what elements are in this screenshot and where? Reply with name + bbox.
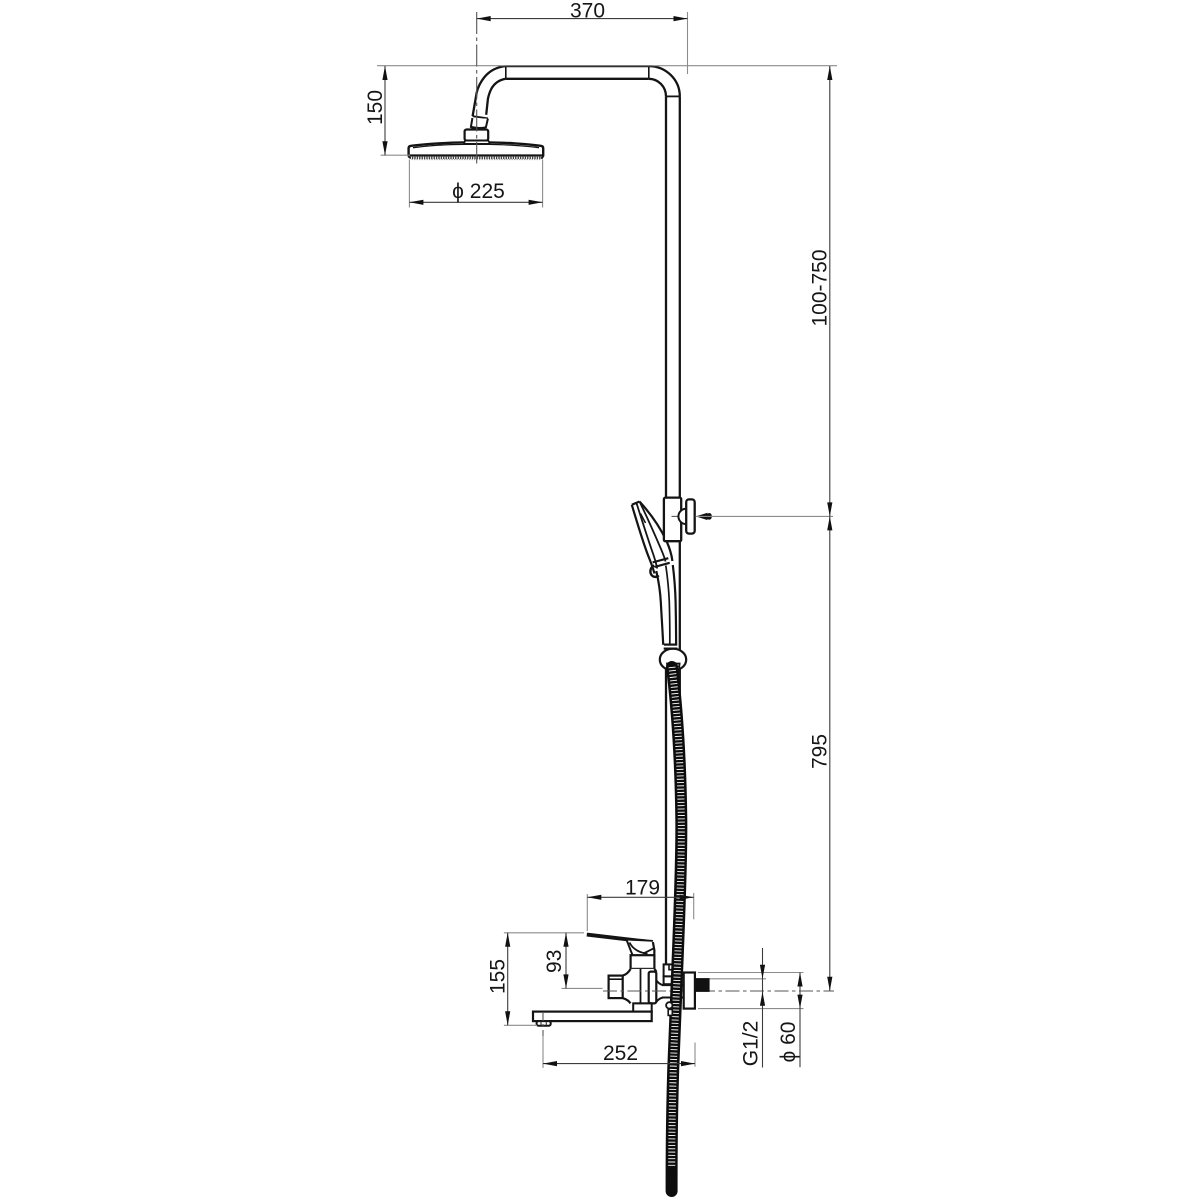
svg-text:150: 150: [364, 90, 387, 125]
svg-text:155: 155: [487, 959, 510, 994]
svg-text:179: 179: [625, 876, 660, 899]
svg-text:93: 93: [543, 950, 566, 973]
svg-text:252: 252: [603, 1042, 638, 1065]
svg-text:ϕ 60: ϕ 60: [777, 1022, 800, 1063]
svg-text:370: 370: [570, 0, 605, 23]
svg-text:795: 795: [809, 734, 832, 769]
svg-text:100-750: 100-750: [809, 249, 832, 326]
svg-text:G1/2: G1/2: [740, 1021, 763, 1067]
svg-text:ϕ 225: ϕ 225: [452, 180, 505, 203]
